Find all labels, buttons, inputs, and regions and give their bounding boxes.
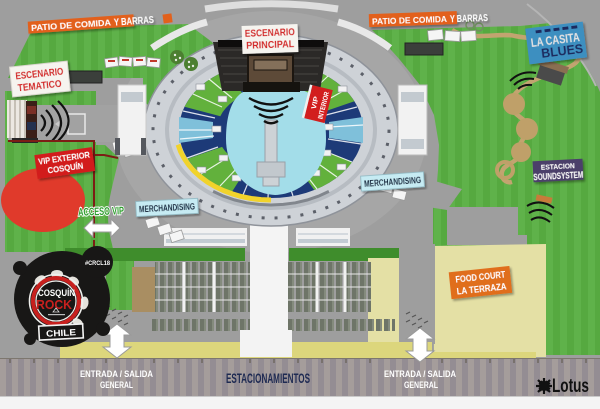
svg-text:#CRCL18: #CRCL18: [85, 260, 110, 267]
svg-text:Y BARRAS: Y BARRAS: [450, 12, 488, 25]
svg-text:ESCENARIO: ESCENARIO: [245, 27, 296, 40]
svg-text:ESTACIONAMIENTOS: ESTACIONAMIENTOS: [226, 371, 310, 386]
svg-text:ENTRADA / SALIDA: ENTRADA / SALIDA: [80, 369, 153, 380]
svg-text:GENERAL: GENERAL: [404, 380, 438, 391]
svg-text:ENTRADA / SALIDA: ENTRADA / SALIDA: [384, 369, 456, 380]
svg-text:Lotus: Lotus: [552, 376, 589, 397]
svg-text:GENERAL: GENERAL: [100, 380, 133, 391]
svg-text:PRINCIPAL: PRINCIPAL: [246, 39, 294, 52]
svg-text:CHILE: CHILE: [46, 327, 76, 339]
svg-text:ACCESO VIP: ACCESO VIP: [78, 205, 124, 219]
